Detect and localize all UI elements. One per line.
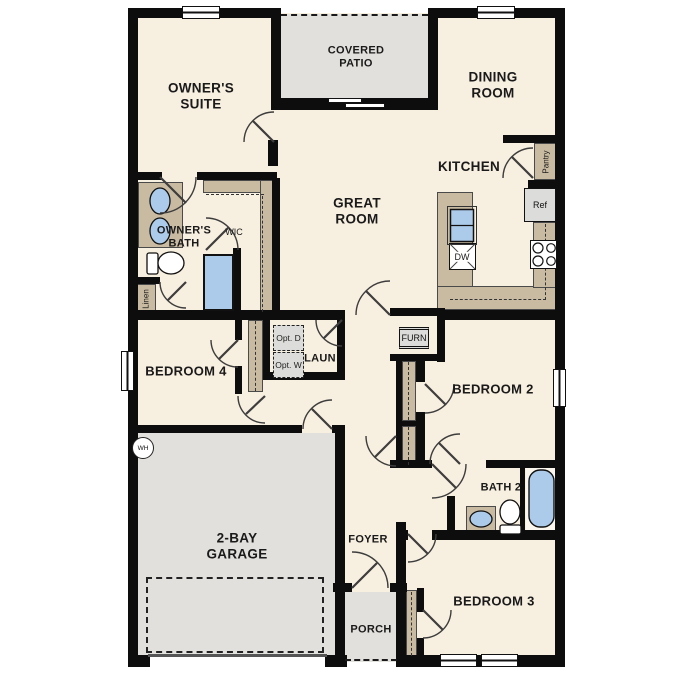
room-label-dining-room: DINING ROOM bbox=[455, 69, 531, 100]
room-label-wic: WIC bbox=[225, 227, 243, 237]
dishwasher-label: DW bbox=[454, 252, 471, 262]
wall bbox=[486, 460, 565, 468]
window bbox=[477, 6, 515, 19]
wall bbox=[528, 180, 565, 188]
wall bbox=[235, 366, 242, 394]
water-heater: WH bbox=[132, 437, 154, 459]
room-label-laundry: LAUN bbox=[304, 353, 336, 366]
stove bbox=[530, 240, 557, 269]
wall bbox=[128, 655, 150, 667]
wall bbox=[520, 466, 525, 532]
optional-washer: Opt. W bbox=[273, 352, 304, 378]
room-label-bedroom-3: BEDROOM 3 bbox=[453, 595, 534, 610]
wall bbox=[428, 8, 438, 110]
closet-rod-line bbox=[408, 362, 409, 420]
room-label-great-room: GREAT ROOM bbox=[322, 195, 392, 226]
linen-label: Linen bbox=[141, 289, 150, 309]
room-label-bedroom-4: BEDROOM 4 bbox=[145, 365, 226, 380]
wall bbox=[396, 361, 402, 466]
closet-rod-line bbox=[255, 321, 256, 391]
bath2-vanity bbox=[466, 506, 496, 532]
floor-plan: Ref FURN Opt. D Opt. W WH bbox=[0, 0, 687, 687]
wic-shelf-line bbox=[206, 194, 264, 195]
wall bbox=[432, 530, 565, 540]
room-label-garage: 2-BAY GARAGE bbox=[190, 530, 285, 561]
bedroom2-closet-a bbox=[402, 361, 416, 421]
wall bbox=[197, 172, 277, 180]
patio-roof-line bbox=[281, 14, 428, 16]
sliding-glass-door bbox=[345, 103, 385, 108]
room-label-kitchen: KITCHEN bbox=[438, 159, 500, 175]
wall bbox=[333, 583, 352, 592]
wall bbox=[235, 318, 242, 340]
wall bbox=[402, 421, 416, 426]
room-label-owners-suite: OWNER'S SUITE bbox=[155, 80, 247, 111]
wall bbox=[128, 425, 302, 433]
kitchen-counter-bottom bbox=[437, 286, 557, 310]
window bbox=[182, 6, 220, 19]
wall bbox=[416, 354, 425, 382]
wall bbox=[128, 8, 138, 667]
furnace: FURN bbox=[399, 327, 429, 349]
furnace-label: FURN bbox=[402, 333, 427, 343]
wall bbox=[268, 140, 278, 166]
closet-rod-line bbox=[408, 427, 409, 465]
tub-surround bbox=[526, 466, 557, 532]
counter-line bbox=[450, 299, 546, 300]
wall bbox=[337, 318, 345, 378]
optional-dryer: Opt. D bbox=[273, 325, 304, 351]
wall bbox=[445, 310, 565, 320]
refrigerator: Ref bbox=[524, 188, 556, 222]
room-label-covered-patio: COVERED PATIO bbox=[320, 44, 392, 69]
wall bbox=[263, 318, 270, 372]
refrigerator-label: Ref bbox=[533, 200, 547, 210]
opt-washer-label: Opt. W bbox=[275, 361, 301, 370]
wall bbox=[272, 178, 280, 318]
wall bbox=[417, 638, 424, 660]
wall bbox=[233, 248, 241, 318]
window bbox=[481, 654, 518, 667]
wall bbox=[133, 172, 162, 180]
wall bbox=[133, 277, 160, 284]
wic-shelf-line bbox=[262, 196, 263, 312]
window bbox=[553, 369, 566, 407]
wall bbox=[555, 8, 565, 667]
garage-door-threshold bbox=[148, 654, 327, 657]
room-label-owners-bath: OWNER'S BATH bbox=[149, 224, 219, 249]
closet-rod-line bbox=[411, 592, 412, 656]
wall bbox=[271, 8, 281, 110]
window bbox=[440, 654, 477, 667]
water-heater-label: WH bbox=[138, 445, 149, 452]
room-label-bath-2: BATH 2 bbox=[480, 482, 522, 495]
wall bbox=[417, 588, 424, 612]
wall bbox=[335, 425, 345, 667]
opt-dryer-label: Opt. D bbox=[276, 334, 301, 343]
garage-bay-outline bbox=[146, 577, 324, 653]
room-label-foyer: FOYER bbox=[348, 534, 387, 547]
wall bbox=[390, 583, 407, 592]
wall bbox=[503, 135, 565, 143]
wall bbox=[390, 460, 432, 468]
room-label-porch: PORCH bbox=[350, 624, 391, 637]
wall bbox=[396, 522, 406, 667]
window bbox=[121, 351, 134, 391]
room-label-bedroom-2: BEDROOM 2 bbox=[452, 383, 533, 398]
pantry-label: Pantry bbox=[541, 150, 550, 173]
porch-edge-line bbox=[345, 659, 397, 661]
